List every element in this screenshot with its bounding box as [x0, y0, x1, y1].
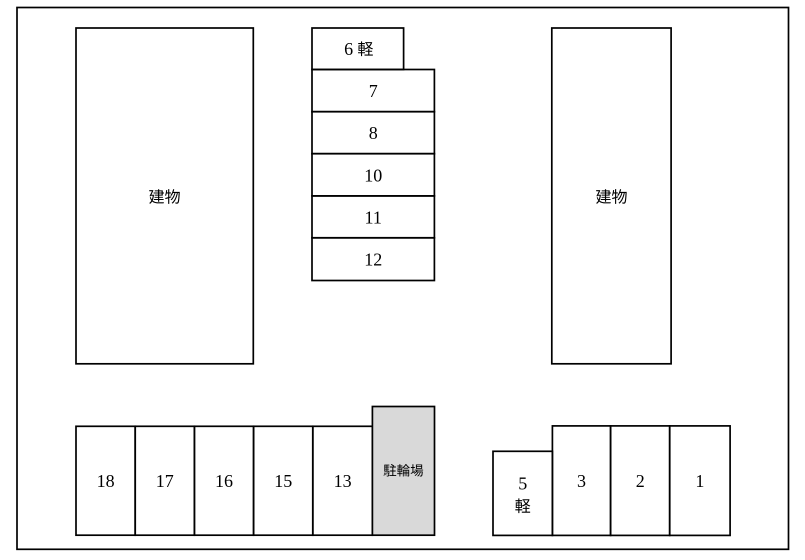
svg-text:18: 18: [97, 471, 115, 491]
svg-text:13: 13: [334, 471, 352, 491]
svg-text:11: 11: [365, 207, 382, 227]
svg-text:3: 3: [577, 471, 586, 491]
svg-text:10: 10: [364, 165, 382, 185]
svg-text:6: 6: [344, 39, 353, 59]
svg-text:16: 16: [215, 471, 233, 491]
svg-text:8: 8: [369, 123, 378, 143]
svg-text:5: 5: [518, 474, 527, 494]
svg-text:2: 2: [636, 471, 645, 491]
svg-text:1: 1: [695, 471, 704, 491]
svg-text:17: 17: [156, 471, 174, 491]
svg-text:7: 7: [369, 81, 378, 101]
svg-text:12: 12: [364, 250, 382, 270]
svg-text:15: 15: [274, 471, 292, 491]
